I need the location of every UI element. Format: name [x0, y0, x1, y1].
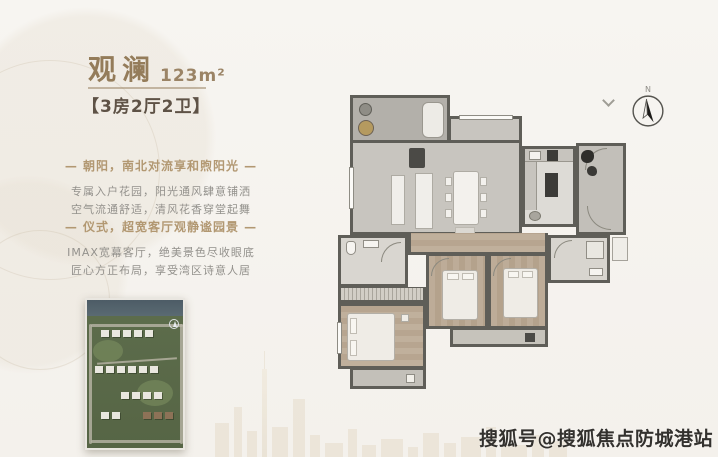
water-band	[87, 300, 183, 316]
ac-platform	[612, 237, 628, 261]
counter-appliance-icon	[529, 211, 541, 221]
window	[337, 322, 342, 354]
sideboard-icon	[415, 173, 433, 229]
feature-line: 匠心方正布局，享受湾区诗意人居	[36, 262, 286, 280]
site-plan-image	[85, 298, 185, 450]
master-bathroom	[338, 235, 408, 287]
chair-icon	[480, 209, 487, 218]
washer-icon	[359, 103, 372, 116]
poster-canvas: { "unit": { "name": "观澜", "area": "123m²…	[0, 0, 718, 457]
sink-icon	[529, 151, 541, 160]
chair-icon	[445, 193, 452, 202]
entry-foyer	[576, 143, 626, 235]
feature-section-2: — 仪式，超宽客厅观静谧园景 — IMAX宽幕客厅，绝美景色尽收眼底 匠心方正布…	[36, 218, 286, 280]
chair-icon	[445, 209, 452, 218]
building-row	[95, 366, 158, 373]
shower-icon	[586, 241, 604, 259]
ac-unit-icon	[525, 333, 535, 342]
basin-icon	[358, 120, 374, 136]
watermark-text: 搜狐号@搜狐焦点防城港站	[479, 424, 713, 451]
window	[459, 115, 513, 120]
balcony	[450, 329, 548, 347]
kitchen-counter	[525, 162, 537, 210]
floor-plan	[330, 85, 632, 397]
feature-heading: — 朝阳，南北对流享和煦阳光 —	[36, 157, 286, 174]
unit-title: 观澜 123m²	[88, 48, 226, 88]
master-bedroom	[338, 303, 426, 369]
unit-area: 123m²	[160, 66, 226, 88]
plant-icon	[587, 166, 597, 176]
chair-icon	[480, 177, 487, 186]
north-arrow-icon	[631, 94, 665, 128]
master-balcony	[350, 369, 426, 389]
bathtub-icon	[422, 102, 444, 138]
nightstand-icon	[401, 314, 409, 322]
tv-cabinet-icon	[409, 148, 425, 168]
layout-label: 【3房2厅2卫】	[82, 92, 211, 117]
feature-section-1: — 朝阳，南北对流享和煦阳光 — 专属入户花园，阳光通风肆意铺洒 空气流通舒适，…	[36, 157, 286, 219]
fridge-icon	[545, 173, 558, 197]
building-row	[143, 412, 173, 419]
floor-drain-icon	[406, 374, 415, 383]
bedroom-3	[488, 253, 548, 329]
stove-icon	[547, 150, 558, 161]
feature-heading: — 仪式，超宽客厅观静谧园景 —	[36, 218, 286, 235]
building-row	[121, 392, 162, 399]
sink-icon	[589, 268, 603, 276]
feature-line: 空气流通舒适，清风花香穿堂起舞	[36, 201, 286, 219]
chair-icon	[445, 177, 452, 186]
hallway	[408, 233, 548, 255]
compass: N	[628, 86, 668, 132]
site-plan-compass-icon	[169, 319, 179, 329]
unit-name: 观澜	[88, 48, 156, 88]
kitchen	[522, 146, 576, 227]
door-arc	[554, 240, 572, 258]
wardrobe	[338, 287, 426, 303]
building-row	[101, 330, 153, 337]
shower-door-arc	[381, 242, 401, 262]
chair-icon	[480, 193, 487, 202]
bed-icon	[503, 268, 538, 318]
building-row	[101, 412, 120, 419]
title-underline	[88, 87, 206, 89]
bathroom-2	[548, 235, 610, 283]
sink-icon	[363, 240, 379, 248]
feature-line: 专属入户花园，阳光通风肆意铺洒	[36, 183, 286, 201]
feature-line: IMAX宽幕客厅，绝美景色尽收眼底	[36, 244, 286, 262]
plant-icon	[581, 150, 594, 163]
bed-icon	[347, 313, 395, 361]
bed-icon	[442, 270, 478, 320]
door-arc	[587, 206, 611, 230]
compass-north-label: N	[628, 86, 668, 94]
kitchen-island-icon	[391, 175, 405, 225]
living-dining-room	[350, 140, 522, 235]
laundry-bathroom	[350, 95, 450, 145]
window	[349, 167, 354, 209]
dining-table-icon	[453, 171, 479, 225]
bedroom-2	[426, 253, 488, 329]
tower-silhouette	[262, 369, 267, 457]
toilet-icon	[346, 241, 356, 255]
